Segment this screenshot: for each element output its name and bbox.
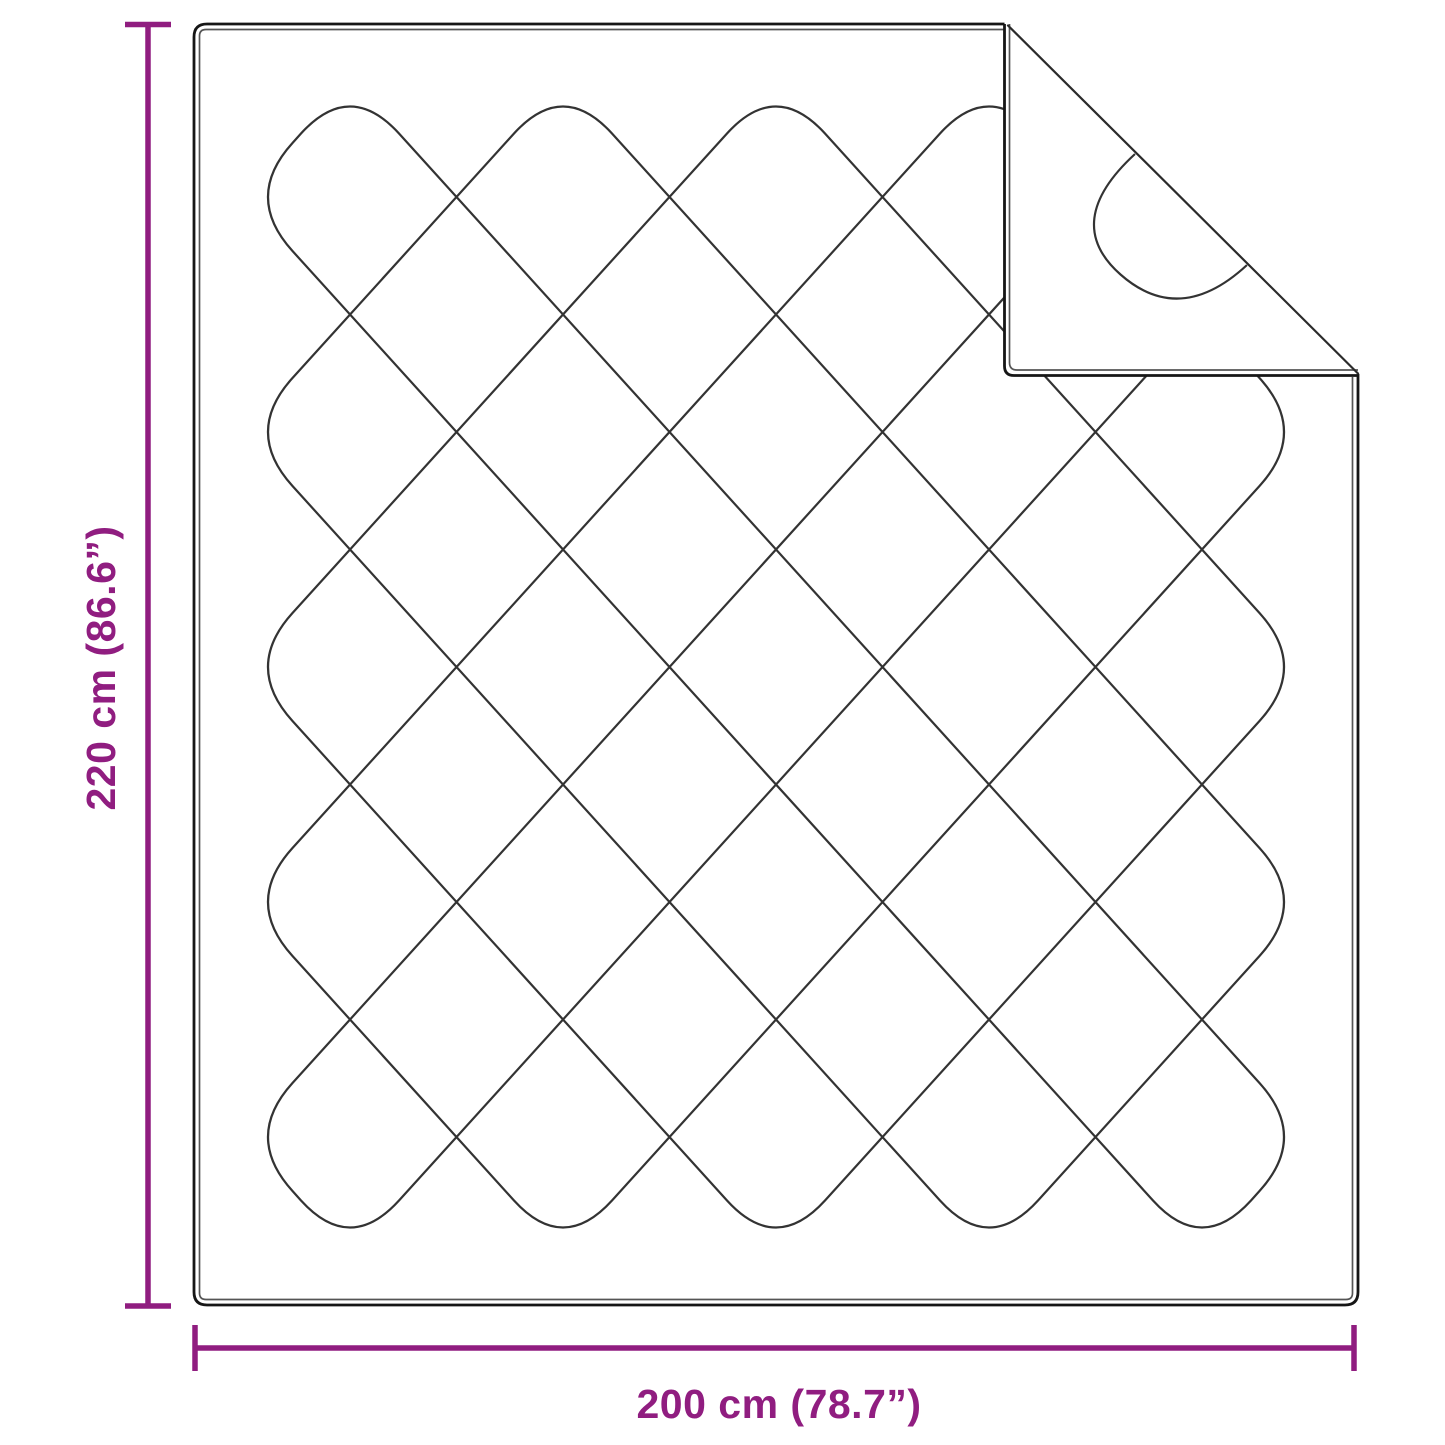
height-dimension (125, 25, 171, 1307)
height-dimension-label: 220 cm (86.6”) (77, 458, 125, 878)
blanket-illustration (194, 24, 1358, 1305)
width-dimension (195, 1325, 1354, 1371)
diagram-canvas (0, 0, 1445, 1445)
product-dimension-diagram: 220 cm (86.6”) 200 cm (78.7”) (0, 0, 1445, 1445)
width-dimension-label: 200 cm (78.7”) (569, 1380, 989, 1428)
